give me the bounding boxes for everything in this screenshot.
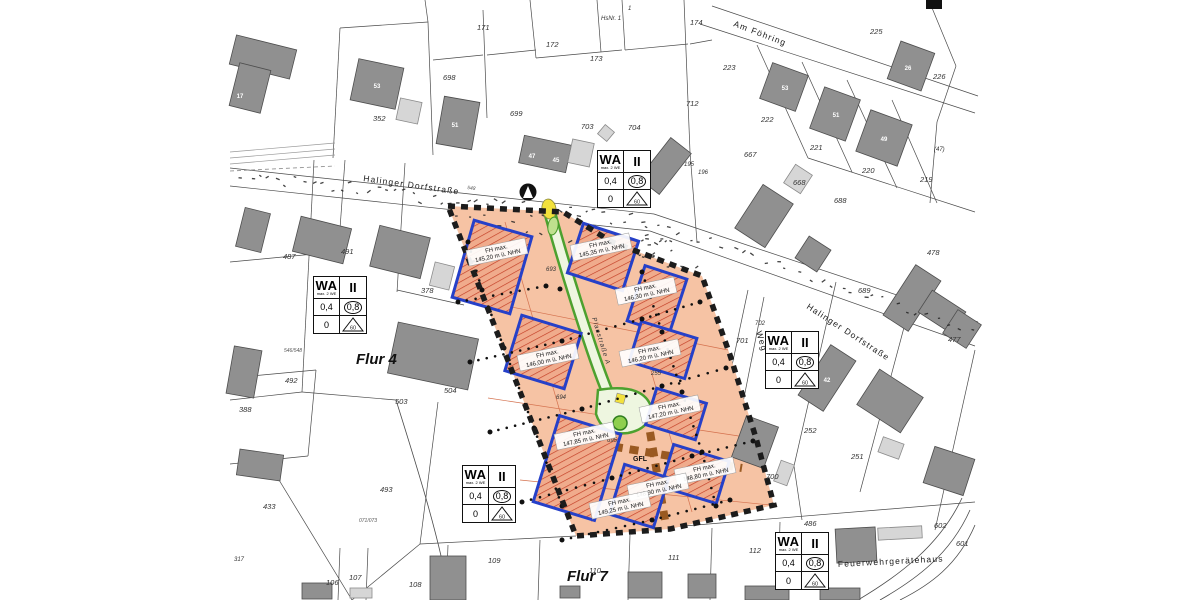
parcel-line (420, 402, 438, 544)
measure-dot (695, 434, 698, 437)
measure-dot (668, 514, 671, 517)
house-number: 42 (824, 378, 831, 384)
survey-speck (601, 211, 605, 213)
parcel-line (712, 6, 978, 96)
map-corner-mark (926, 0, 942, 9)
wa-open-space: 0 (608, 194, 613, 204)
measure-dot (711, 503, 714, 506)
survey-speck (695, 265, 699, 268)
parcel-line (487, 50, 536, 55)
survey-speck (667, 226, 671, 228)
wa-grz: 0,4 (320, 302, 333, 312)
survey-speck (664, 240, 667, 242)
survey-speck (483, 214, 485, 215)
survey-speck (629, 213, 634, 216)
measure-node (610, 476, 615, 481)
measure-dot (624, 525, 627, 528)
parcel-line (794, 466, 802, 520)
measure-dot (675, 374, 678, 377)
survey-speck (830, 285, 833, 288)
measure-dot (689, 416, 692, 419)
parcel-number: 688 (834, 196, 847, 205)
survey-speck (777, 261, 781, 263)
measure-node (580, 407, 585, 412)
survey-speck (810, 280, 813, 283)
wa-zone-sub: max. 2 WE (601, 165, 621, 170)
measure-dot (703, 460, 706, 463)
survey-speck (865, 296, 869, 298)
wa-roof-angle: 60 (499, 515, 505, 521)
survey-speck (486, 203, 489, 205)
wa-cell: 0,8 (624, 173, 650, 190)
measure-dot (734, 444, 737, 447)
wa-cell: 0,4 (766, 354, 792, 371)
wa-cell: WAmax. 2 WE (314, 277, 340, 299)
survey-speck (765, 262, 768, 264)
measure-dot (536, 345, 539, 348)
parcel-line (333, 28, 340, 158)
building (519, 135, 572, 172)
building (795, 236, 831, 272)
parcel-number: 701 (736, 336, 749, 345)
house-number: 53 (374, 84, 381, 90)
zoning-legend-box: WAmax. 2 WEII0,40,80 60 (597, 150, 651, 208)
measure-dot (518, 387, 521, 390)
parcel-number: 1 (628, 6, 631, 12)
measure-dot (510, 291, 513, 294)
measure-dot (587, 332, 590, 335)
parcel-number: 195 (684, 162, 695, 168)
measure-dot (539, 418, 542, 421)
measure-dot (509, 363, 512, 366)
wa-zone-sub: max. 2 WE (317, 291, 337, 296)
survey-speck (522, 201, 526, 203)
measure-dot (706, 372, 709, 375)
measure-node (558, 287, 563, 292)
parcel-number: 704 (628, 123, 641, 132)
survey-speck (259, 175, 262, 178)
road-hatch-strip (230, 143, 335, 171)
wa-storeys: II (633, 154, 640, 169)
wa-cell: 0 (463, 505, 489, 522)
measure-node (724, 366, 729, 371)
parcel-number: 352 (373, 114, 386, 123)
survey-speck (821, 279, 825, 283)
measure-node (698, 300, 703, 305)
zoning-legend-box: WAmax. 2 WEII0,40,80 60 (775, 532, 829, 590)
survey-speck (577, 215, 581, 217)
survey-speck (356, 192, 358, 194)
gfl-label: GFL (633, 456, 648, 463)
house-number: 49 (881, 137, 888, 143)
parcel-number: 694 (556, 395, 567, 401)
zoning-legend-box: WAmax. 2 WEII0,40,80 60 (765, 331, 819, 389)
measure-node (468, 360, 473, 365)
measure-node (728, 498, 733, 503)
measure-dot (485, 357, 488, 360)
wa-zone-label: WA (465, 469, 487, 480)
measure-dot (598, 403, 601, 406)
measure-dot (652, 387, 655, 390)
wa-cell: II (340, 277, 366, 299)
parcel-number: 221 (809, 143, 823, 152)
survey-speck (592, 208, 596, 210)
measure-dot (597, 531, 600, 534)
parcel-number: 112 (749, 546, 762, 555)
measure-dot (672, 365, 675, 368)
wa-cell: WAmax. 2 WE (463, 466, 489, 488)
parcel-number: 173 (590, 54, 603, 63)
wa-gfz-circled: 0,8 (493, 490, 512, 503)
survey-speck (569, 207, 572, 208)
wa-storeys: II (349, 280, 356, 295)
wa-cell: 0 (766, 371, 792, 388)
wa-cell: 0,4 (776, 555, 802, 572)
measure-node (640, 270, 645, 275)
zoning-plan-map: 171172173174HsNr. 1122322522622222122021… (0, 0, 1200, 600)
measure-dot (490, 314, 493, 317)
house-number: 53 (782, 86, 789, 92)
measure-dot (578, 335, 581, 338)
measure-dot (536, 435, 539, 438)
wa-cell: 0,4 (463, 488, 489, 505)
measure-dot (717, 448, 720, 451)
measure-dot (642, 521, 645, 524)
measure-dot (726, 446, 729, 449)
survey-speck (843, 288, 846, 290)
survey-speck (645, 238, 649, 240)
wa-open-space: 0 (776, 375, 781, 385)
survey-speck (690, 240, 692, 242)
measure-dot (628, 472, 631, 475)
survey-speck (238, 177, 241, 179)
parcel-number: 478 (927, 248, 940, 257)
survey-speck (648, 244, 651, 245)
survey-speck (413, 192, 416, 194)
parcel-number: (47) (934, 147, 945, 153)
survey-speck (440, 202, 443, 205)
parcel-line (308, 370, 316, 456)
measure-dot (572, 410, 575, 413)
parcel-number: 702 (755, 321, 766, 327)
parcel-number: 222 (760, 115, 774, 124)
parcel-number: 491 (341, 247, 354, 256)
parcel-number: 601 (956, 539, 969, 548)
measure-dot (688, 377, 691, 380)
building (236, 449, 283, 481)
wa-roof-angle: 60 (634, 200, 640, 206)
survey-speck (276, 178, 280, 181)
measure-dot (659, 516, 662, 519)
wa-cell: 0,8 (340, 299, 366, 316)
building (236, 207, 271, 252)
parcel-number: 668 (793, 178, 806, 187)
house-number: 51 (833, 113, 840, 119)
survey-speck (433, 195, 437, 197)
parcel-number: 493 (380, 485, 393, 494)
wa-storeys: II (811, 536, 818, 551)
measure-dot (743, 442, 746, 445)
survey-speck (645, 226, 648, 228)
survey-speck (697, 241, 700, 242)
measure-dot (511, 351, 514, 354)
parcel-number: 700 (766, 472, 779, 481)
wa-cell: 0,4 (314, 299, 340, 316)
small-ref-label: 546/548 (284, 348, 302, 354)
measure-dot (607, 400, 610, 403)
wa-open-space: 0 (473, 509, 478, 519)
measure-node (560, 538, 565, 543)
measure-dot (634, 392, 637, 395)
parcel-line (340, 22, 428, 28)
measure-dot (552, 342, 555, 345)
wa-cell: 0 (776, 572, 802, 589)
measure-dot (679, 380, 682, 383)
parcel-number: 106 (326, 578, 339, 587)
measure-dot (632, 320, 635, 323)
wa-gfz-circled: 0,8 (806, 557, 825, 570)
parcel-number: HsNr. 1 (601, 16, 621, 22)
measure-dot (720, 501, 723, 504)
measure-dot (673, 460, 676, 463)
survey-speck (418, 201, 422, 204)
wa-cell: 0,4 (598, 173, 624, 190)
house-number: 26 (905, 66, 912, 72)
measure-dot (527, 288, 530, 291)
measure-dot (527, 411, 530, 414)
measure-node (520, 500, 525, 505)
wa-cell: WAmax. 2 WE (776, 533, 802, 555)
parcel-number: 477 (948, 335, 961, 344)
parcel-line (425, 0, 428, 22)
parcel-number: 174 (690, 18, 703, 27)
parcel-number: 171 (477, 23, 490, 32)
measure-dot (674, 308, 677, 311)
survey-speck (469, 216, 471, 217)
survey-speck (881, 296, 883, 298)
parcel-number: 225 (869, 27, 883, 36)
measure-dot (682, 457, 685, 460)
wa-cell: 0,8 (802, 555, 828, 572)
wa-cell: WAmax. 2 WE (766, 332, 792, 354)
measure-dot (564, 412, 567, 415)
wa-cell: 60 (802, 572, 828, 589)
flur-label: Flur 7 (567, 568, 608, 585)
wa-zone-label: WA (768, 335, 790, 346)
parcel-number: 693 (546, 267, 557, 273)
parcel-number: 255 (650, 371, 662, 377)
wa-open-space: 0 (786, 576, 791, 586)
measure-dot (602, 479, 605, 482)
parcel-number: 698 (443, 73, 456, 82)
measure-dot (570, 537, 573, 540)
measure-node (700, 450, 705, 455)
wa-zone-sub: max. 2 WE (779, 547, 799, 552)
measure-dot (708, 450, 711, 453)
measure-node (650, 518, 655, 523)
parcel-line (622, 0, 625, 50)
survey-speck (641, 239, 644, 241)
parcel-line (433, 55, 483, 60)
wa-zone-sub: max. 2 WE (466, 480, 486, 485)
measure-dot (544, 344, 547, 347)
survey-speck (455, 215, 458, 216)
measure-dot (590, 405, 593, 408)
measure-dot (703, 505, 706, 508)
small-ref-label: 548 (467, 185, 476, 192)
survey-speck (385, 189, 388, 191)
survey-speck (734, 247, 738, 250)
parcel-line (536, 50, 622, 58)
survey-speck (494, 198, 498, 201)
survey-speck (585, 210, 587, 212)
survey-speck (660, 238, 663, 239)
parcel-number: 433 (263, 502, 276, 511)
measure-dot (527, 347, 530, 350)
measure-dot (492, 294, 495, 297)
parcel-number: 251 (850, 452, 864, 461)
measure-dot (620, 474, 623, 477)
building (857, 369, 923, 433)
wa-zone-label: WA (316, 280, 338, 291)
measure-dot (666, 310, 669, 313)
measure-dot (575, 486, 578, 489)
parcel-number: 109 (488, 556, 501, 565)
parcel-line (930, 122, 937, 203)
parcel-number: 108 (409, 580, 422, 589)
measure-node (560, 339, 565, 344)
flur-label: Flur 4 (356, 351, 397, 368)
wa-cell: 0 (314, 316, 340, 333)
roof-angle-triangle: 60 (794, 372, 816, 387)
outbuilding (878, 526, 923, 540)
zoning-legend-box: WAmax. 2 WEII0,40,80 60 (313, 276, 367, 334)
parcel-number: 107 (349, 573, 362, 582)
survey-speck (456, 202, 459, 203)
survey-speck (341, 189, 344, 192)
wa-cell: 60 (340, 316, 366, 333)
building (628, 572, 662, 598)
measure-dot (566, 489, 569, 492)
survey-speck (641, 221, 645, 223)
map-canvas: 171172173174HsNr. 1122322522622222122021… (0, 0, 1200, 600)
measure-dot (505, 427, 508, 430)
parcel-number: 317 (234, 557, 245, 563)
parcel-number: 172 (546, 40, 559, 49)
tree-symbol (613, 416, 627, 430)
parcel-number: 252 (803, 426, 817, 435)
survey-speck (265, 176, 269, 179)
survey-speck (320, 182, 324, 184)
survey-speck (348, 181, 352, 183)
wa-cell: WAmax. 2 WE (598, 151, 624, 173)
survey-speck (670, 249, 673, 251)
measure-dot (646, 467, 649, 470)
measure-dot (593, 482, 596, 485)
measure-dot (690, 303, 693, 306)
wa-cell: 0,8 (792, 354, 818, 371)
measure-dot (712, 496, 715, 499)
measure-dot (500, 338, 503, 341)
parcel-number: 667 (744, 150, 757, 159)
measure-dot (478, 279, 481, 282)
building (292, 216, 351, 264)
measure-dot (655, 464, 658, 467)
measure-dot (536, 286, 539, 289)
wa-zone-label: WA (600, 154, 622, 165)
measure-dot (474, 298, 477, 301)
measure-dot (649, 315, 652, 318)
parcel-line (690, 40, 712, 44)
building (430, 556, 466, 600)
survey-speck (657, 225, 659, 227)
measure-dot (556, 414, 559, 417)
measure-node (488, 430, 493, 435)
wa-storeys: II (801, 335, 808, 350)
measure-dot (685, 510, 688, 513)
survey-speck (750, 252, 754, 256)
parcel-number: 220 (861, 166, 875, 175)
wa-grz: 0,4 (469, 491, 482, 501)
measure-dot (644, 279, 647, 282)
parcel-number: 487 (283, 252, 296, 261)
strip-dash (230, 166, 335, 171)
wa-zone-sub: max. 2 WE (769, 346, 789, 351)
parcel-line (935, 350, 975, 530)
outbuilding (396, 98, 422, 124)
measure-node (714, 504, 719, 509)
measure-node (690, 454, 695, 459)
house-number: 17 (237, 94, 244, 100)
parcel-line (625, 44, 688, 50)
roof-angle-triangle: 60 (342, 317, 364, 332)
measure-dot (497, 429, 500, 432)
survey-speck (870, 294, 873, 296)
measure-dot (518, 290, 521, 293)
survey-speck (293, 176, 296, 178)
survey-speck (610, 222, 613, 224)
parcel-line (420, 536, 576, 544)
measure-dot (692, 425, 695, 428)
wa-roof-angle: 60 (802, 381, 808, 387)
survey-speck (709, 237, 712, 239)
measure-dot (710, 487, 713, 490)
outbuilding (598, 125, 615, 142)
wa-cell: II (489, 466, 515, 488)
wa-roof-angle: 60 (812, 582, 818, 588)
survey-speck (378, 186, 382, 188)
survey-speck (303, 181, 306, 183)
measure-node (680, 390, 685, 395)
survey-speck (667, 266, 670, 267)
parcel-number: 486 (804, 519, 817, 528)
measure-dot (545, 461, 548, 464)
building (370, 225, 431, 278)
wa-gfz-circled: 0,8 (796, 356, 815, 369)
wa-cell: II (802, 533, 828, 555)
parcel-line (530, 0, 536, 58)
wa-zone-label: WA (778, 536, 800, 547)
measure-dot (698, 442, 701, 445)
wa-cell: II (624, 151, 650, 173)
measure-dot (558, 496, 561, 499)
parcel-number: 196 (698, 170, 709, 176)
parcel-line (230, 254, 314, 262)
survey-speck (367, 190, 371, 194)
house-number: 45 (553, 158, 560, 164)
measure-node (660, 384, 665, 389)
measure-dot (616, 397, 619, 400)
